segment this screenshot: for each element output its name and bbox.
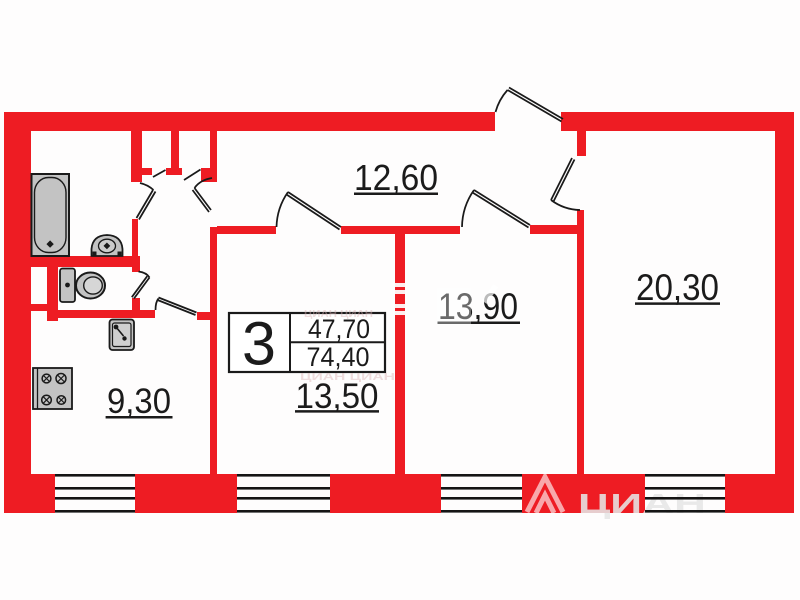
svg-text:74,40: 74,40 (307, 342, 370, 372)
svg-text:20,30: 20,30 (636, 267, 719, 308)
svg-text:ЦИАН ЦИАН: ЦИАН ЦИАН (304, 309, 373, 320)
svg-text:9,30: 9,30 (107, 382, 171, 421)
svg-text:ЦИАН: ЦИАН (578, 488, 706, 519)
svg-text:3: 3 (242, 310, 276, 378)
svg-text:ЦИАН ЦИАН: ЦИАН ЦИАН (300, 372, 395, 383)
svg-text:12,60: 12,60 (354, 157, 438, 198)
